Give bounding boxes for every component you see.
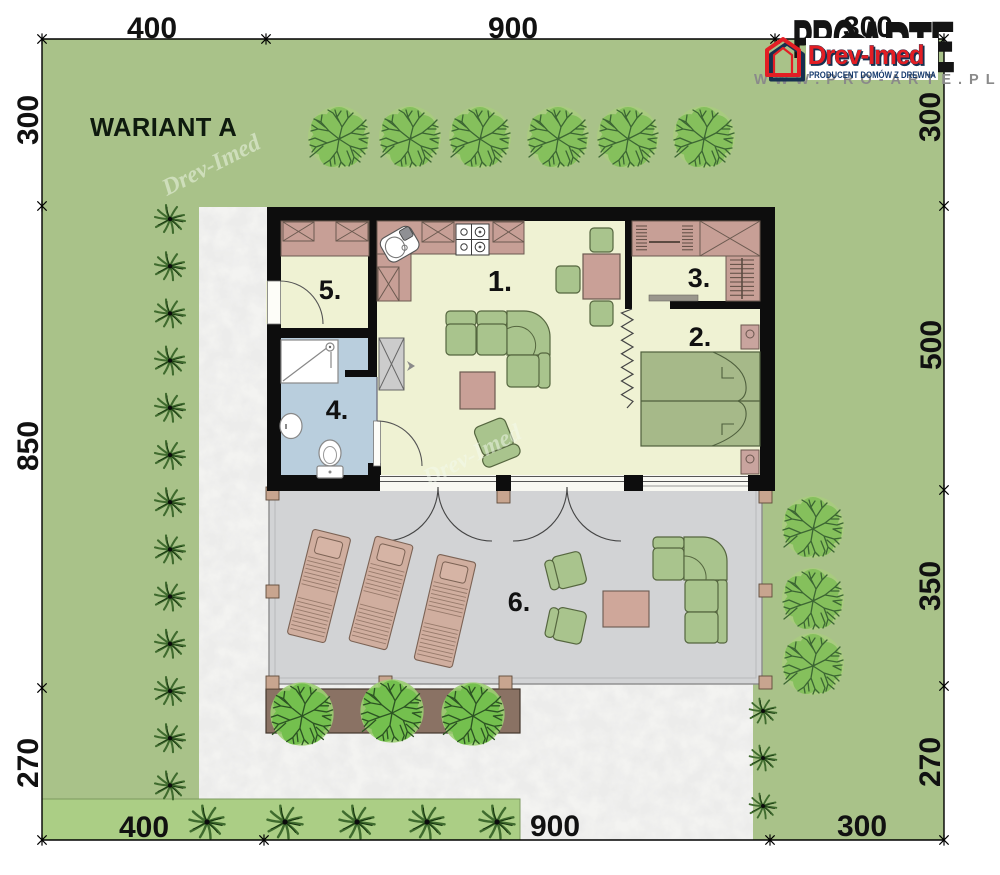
svg-text:300: 300 <box>12 95 45 145</box>
svg-text:270: 270 <box>12 738 45 788</box>
svg-text:400: 400 <box>119 811 169 844</box>
svg-text:400: 400 <box>127 12 177 45</box>
svg-text:1.: 1. <box>488 266 512 298</box>
svg-text:3.: 3. <box>688 263 711 293</box>
svg-text:2.: 2. <box>689 322 712 352</box>
svg-text:850: 850 <box>12 421 45 471</box>
svg-text:270: 270 <box>914 737 947 787</box>
svg-text:Drev-Imed: Drev-Imed <box>808 39 924 70</box>
svg-text:500: 500 <box>915 320 948 370</box>
svg-text:300: 300 <box>914 92 947 142</box>
svg-text:300: 300 <box>837 810 887 843</box>
svg-text:6.: 6. <box>508 587 531 617</box>
svg-text:900: 900 <box>530 810 580 843</box>
svg-text:900: 900 <box>488 12 538 45</box>
svg-text:350: 350 <box>914 561 947 611</box>
svg-text:5.: 5. <box>319 275 342 305</box>
svg-text:WARIANT A: WARIANT A <box>90 114 237 142</box>
svg-text:PRODUCENT DOMÓW Z DREWNA: PRODUCENT DOMÓW Z DREWNA <box>809 69 936 81</box>
svg-text:4.: 4. <box>326 395 349 425</box>
